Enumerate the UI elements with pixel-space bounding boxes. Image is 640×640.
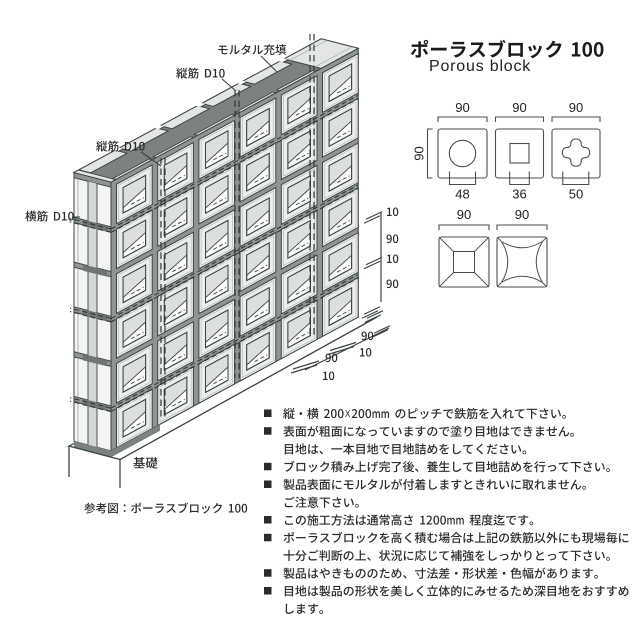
svg-text:90: 90 [569, 100, 583, 115]
svg-text:90: 90 [457, 207, 471, 222]
svg-text:36: 36 [512, 187, 526, 202]
svg-text:90: 90 [412, 146, 427, 160]
svg-text:90: 90 [455, 100, 469, 115]
svg-text:Porous block: Porous block [429, 58, 531, 75]
svg-text:50: 50 [569, 187, 583, 202]
svg-text:90: 90 [515, 207, 529, 222]
svg-text:90: 90 [512, 100, 526, 115]
svg-text:48: 48 [455, 187, 469, 202]
